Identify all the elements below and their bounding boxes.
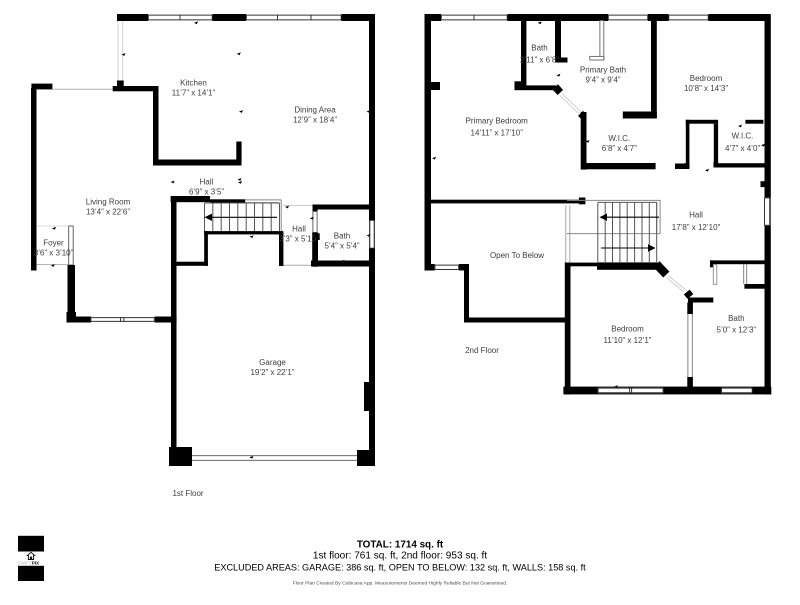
svg-text:W.I.C.: W.I.C. xyxy=(732,132,754,141)
svg-text:Bath: Bath xyxy=(531,44,547,53)
svg-text:Garage: Garage xyxy=(259,358,286,367)
svg-text:2’11” x 6’8”: 2’11” x 6’8” xyxy=(520,56,559,65)
svg-text:11’10” x 12’1”: 11’10” x 12’1” xyxy=(604,336,652,345)
svg-text:3’3” x 5’10”: 3’3” x 5’10” xyxy=(279,235,319,244)
svg-text:3’6” x 3’10”: 3’6” x 3’10” xyxy=(34,248,74,257)
svg-text:17’8” x 12’10”: 17’8” x 12’10” xyxy=(672,223,721,232)
svg-text:Primary Bedroom: Primary Bedroom xyxy=(466,117,529,126)
svg-text:6’9” x 3’5”: 6’9” x 3’5” xyxy=(189,187,224,196)
svg-text:Living Room: Living Room xyxy=(86,197,131,206)
svg-text:12’9” x 18’4”: 12’9” x 18’4” xyxy=(293,115,337,124)
svg-text:Floor Plan Created By Cubicasa: Floor Plan Created By Cubicasa App. Meas… xyxy=(293,581,508,587)
svg-text:1st floor: 761 sq. ft, 2nd flo: 1st floor: 761 sq. ft, 2nd floor: 953 sq… xyxy=(313,551,487,562)
svg-text:4’7” x 4’0”: 4’7” x 4’0” xyxy=(725,144,760,153)
svg-text:1st Floor: 1st Floor xyxy=(172,489,203,498)
svg-text:Hall: Hall xyxy=(292,225,306,234)
svg-text:SWIFTPIX: SWIFTPIX xyxy=(17,560,40,565)
svg-text:TOTAL: 1714 sq. ft: TOTAL: 1714 sq. ft xyxy=(357,540,444,551)
svg-text:Open To Below: Open To Below xyxy=(490,251,544,260)
svg-text:Bedroom: Bedroom xyxy=(690,74,723,83)
svg-text:W.I.C.: W.I.C. xyxy=(608,134,630,143)
svg-text:Bath: Bath xyxy=(728,314,744,323)
svg-text:10’8” x 14’3”: 10’8” x 14’3” xyxy=(684,84,728,93)
svg-text:Foyer: Foyer xyxy=(43,238,64,247)
svg-text:Bath: Bath xyxy=(334,231,350,240)
svg-text:13’4” x 22’6”: 13’4” x 22’6” xyxy=(86,207,130,216)
svg-text:Hall: Hall xyxy=(689,210,703,219)
svg-text:Dining Area: Dining Area xyxy=(294,105,336,114)
svg-text:14’11” x 17’10”: 14’11” x 17’10” xyxy=(471,129,524,138)
svg-text:EXCLUDED AREAS: GARAGE: 386 sq: EXCLUDED AREAS: GARAGE: 386 sq. ft, OPEN… xyxy=(214,563,586,573)
svg-text:6’8” x 4’7”: 6’8” x 4’7” xyxy=(602,144,637,153)
svg-text:5’4” x 5’4”: 5’4” x 5’4” xyxy=(324,241,359,250)
svg-text:Hall: Hall xyxy=(200,177,214,186)
svg-text:11’7” x 14’1”: 11’7” x 14’1” xyxy=(172,88,216,97)
svg-text:5’0” x 12’3”: 5’0” x 12’3” xyxy=(717,326,757,335)
svg-text:2nd Floor: 2nd Floor xyxy=(465,346,499,355)
svg-text:Kitchen: Kitchen xyxy=(180,78,207,87)
svg-text:9’4” x 9’4”: 9’4” x 9’4” xyxy=(585,76,620,85)
svg-text:Primary Bath: Primary Bath xyxy=(580,66,626,75)
svg-text:Bedroom: Bedroom xyxy=(611,324,644,333)
svg-text:19’2” x 22’1”: 19’2” x 22’1” xyxy=(250,368,294,377)
